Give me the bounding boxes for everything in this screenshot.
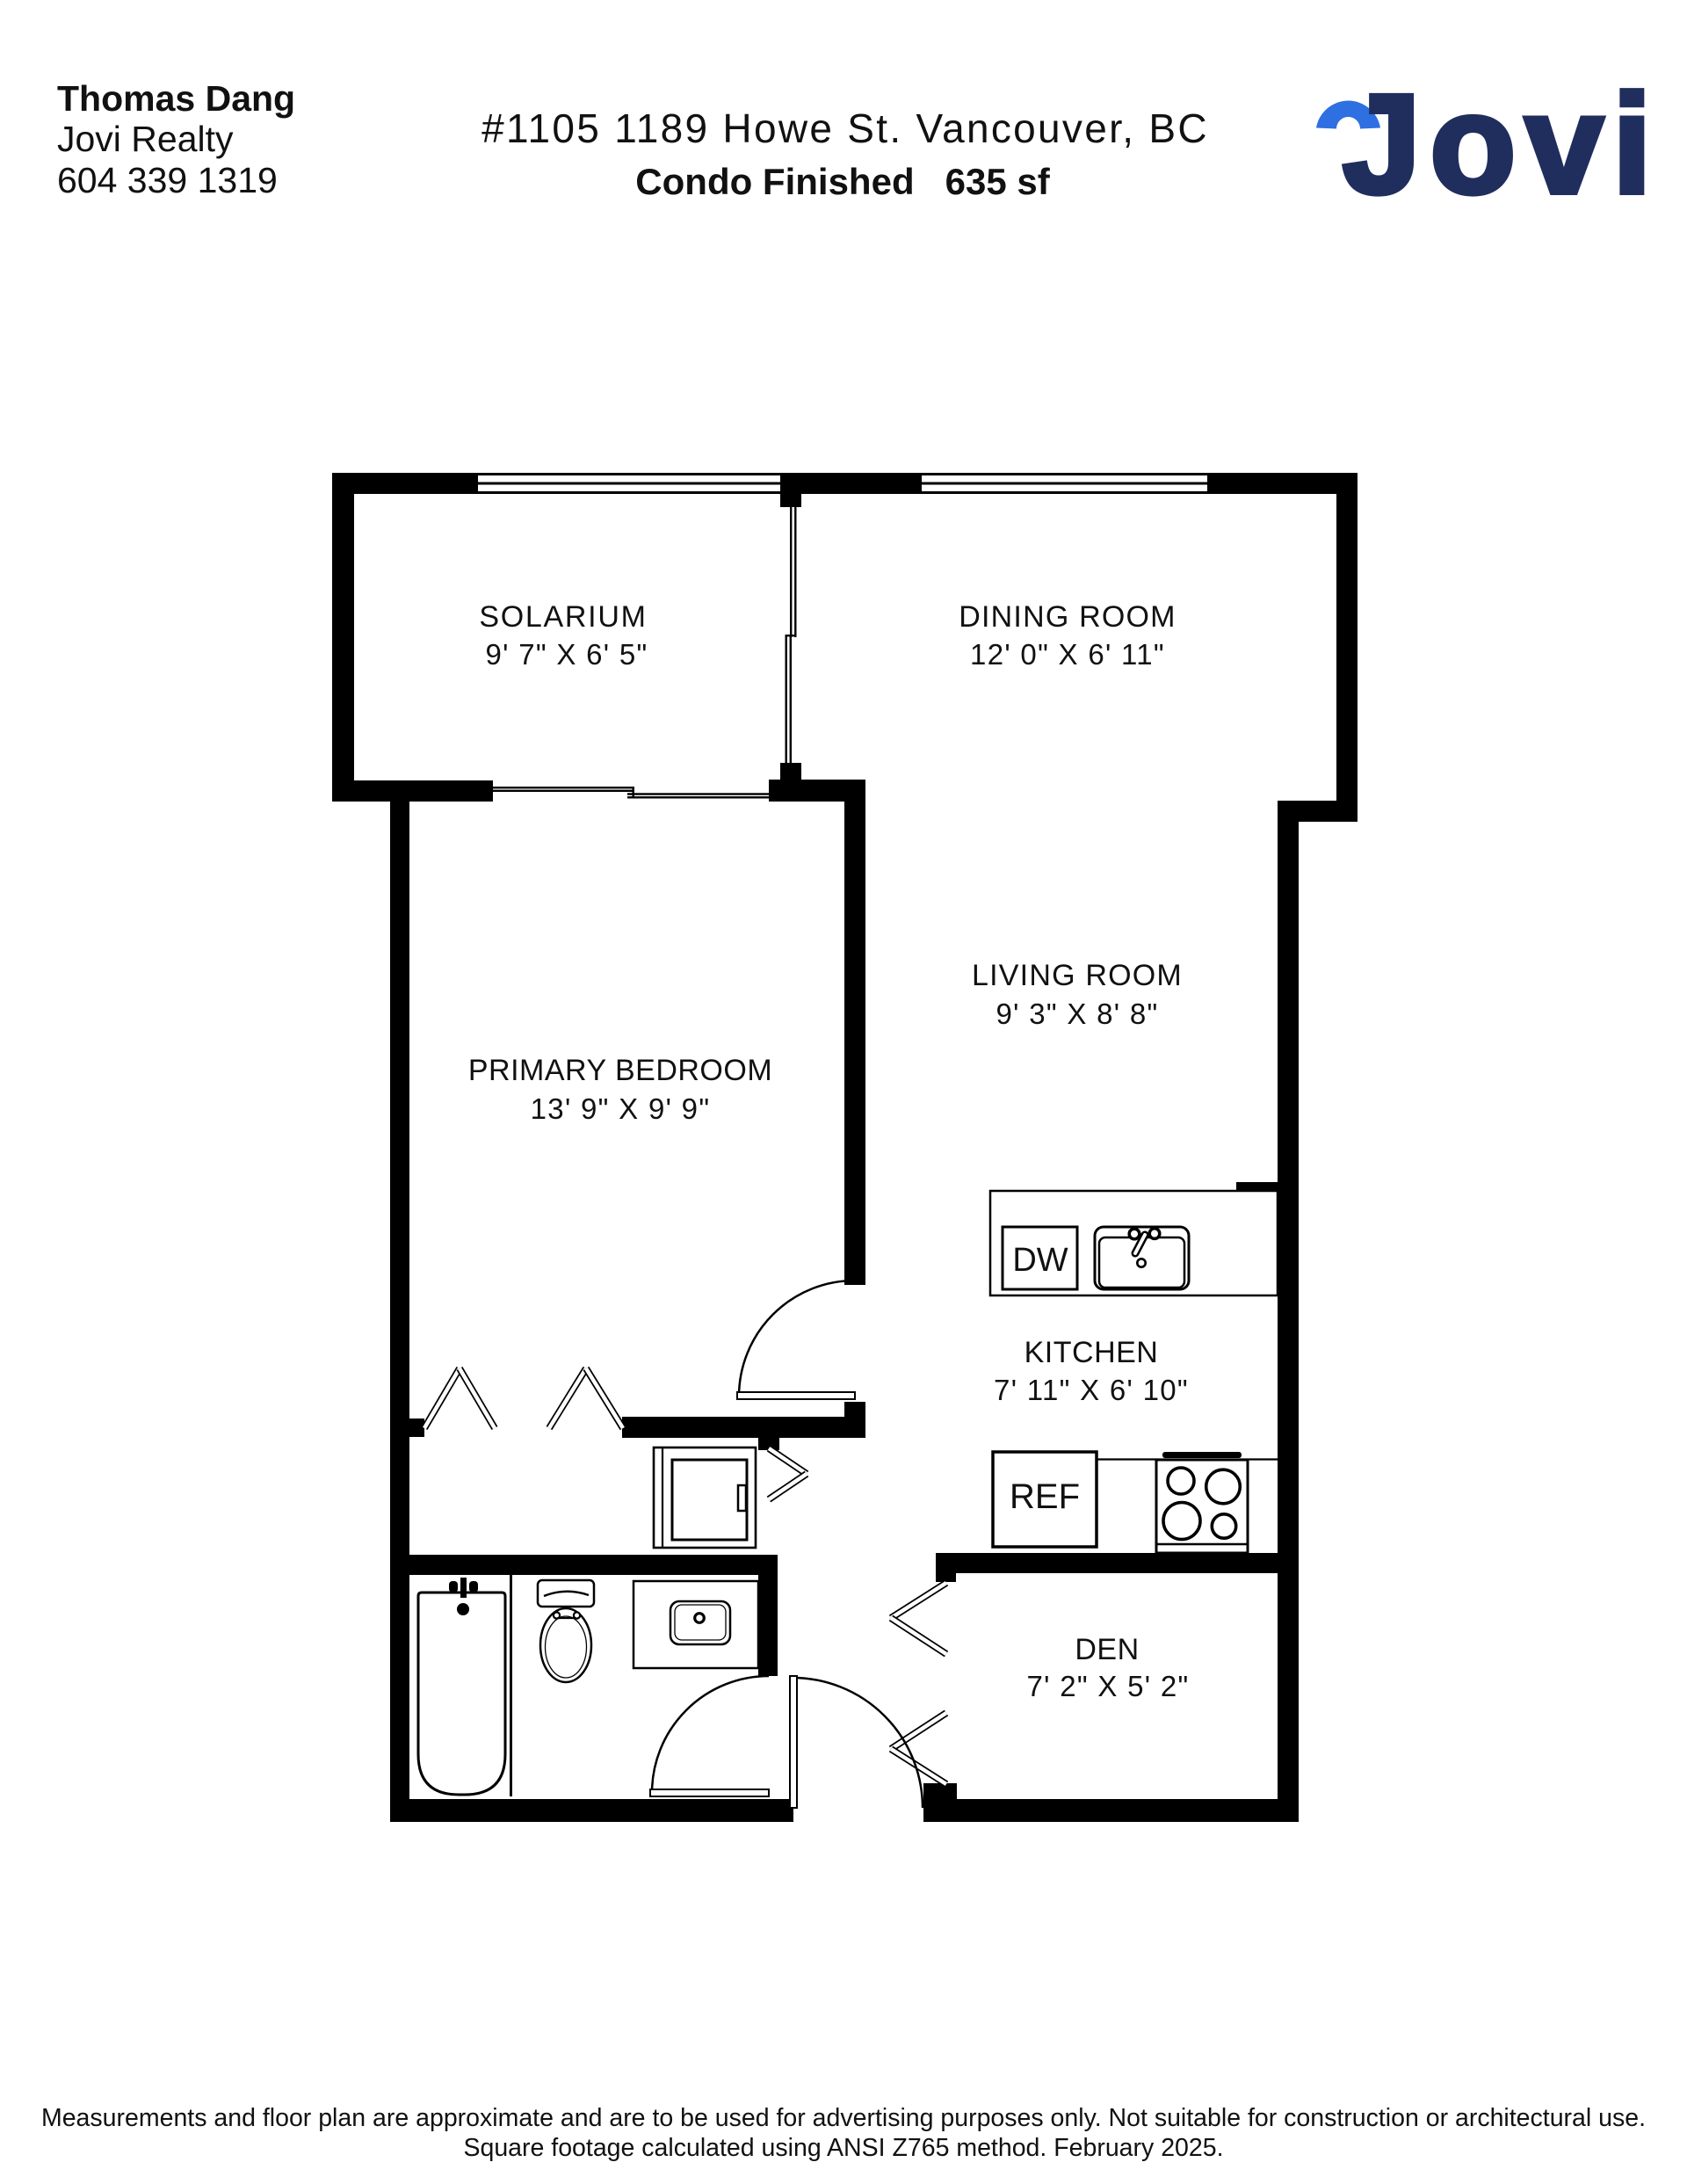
- svg-text:Thomas Dang: Thomas Dang: [57, 78, 295, 119]
- svg-text:Square footage calculated usin: Square footage calculated using ANSI Z76…: [463, 2134, 1223, 2162]
- svg-text:9' 3" X 8' 8": 9' 3" X 8' 8": [996, 998, 1158, 1030]
- svg-text:7' 2" X 5' 2": 7' 2" X 5' 2": [1026, 1670, 1189, 1702]
- svg-text:604 339 1319: 604 339 1319: [57, 160, 278, 200]
- svg-text:DEN: DEN: [1075, 1633, 1139, 1666]
- svg-text:#1105 1189 Howe St. Vancouver,: #1105 1189 Howe St. Vancouver, BC: [481, 105, 1209, 151]
- svg-text:DINING ROOM: DINING ROOM: [959, 600, 1176, 634]
- svg-text:Measurements and floor plan ar: Measurements and floor plan are approxim…: [41, 2104, 1646, 2132]
- svg-text:REF: REF: [1010, 1477, 1080, 1516]
- svg-text:PRIMARY BEDROOM: PRIMARY BEDROOM: [468, 1054, 772, 1087]
- svg-text:SOLARIUM: SOLARIUM: [479, 600, 647, 634]
- svg-text:7' 11" X 6' 10": 7' 11" X 6' 10": [994, 1374, 1189, 1406]
- svg-text:9' 7" X 6' 5": 9' 7" X 6' 5": [485, 638, 648, 671]
- svg-text:Jovi: Jovi: [1343, 65, 1661, 222]
- svg-text:DW: DW: [1012, 1242, 1068, 1279]
- svg-text:Condo Finished 635 sf: Condo Finished 635 sf: [635, 161, 1050, 202]
- svg-text:LIVING ROOM: LIVING ROOM: [972, 959, 1183, 992]
- svg-text:KITCHEN: KITCHEN: [1025, 1336, 1159, 1369]
- svg-text:12' 0" X 6' 11": 12' 0" X 6' 11": [970, 638, 1165, 671]
- svg-text:13' 9" X 9' 9": 13' 9" X 9' 9": [531, 1092, 711, 1125]
- svg-text:Jovi Realty: Jovi Realty: [57, 119, 234, 159]
